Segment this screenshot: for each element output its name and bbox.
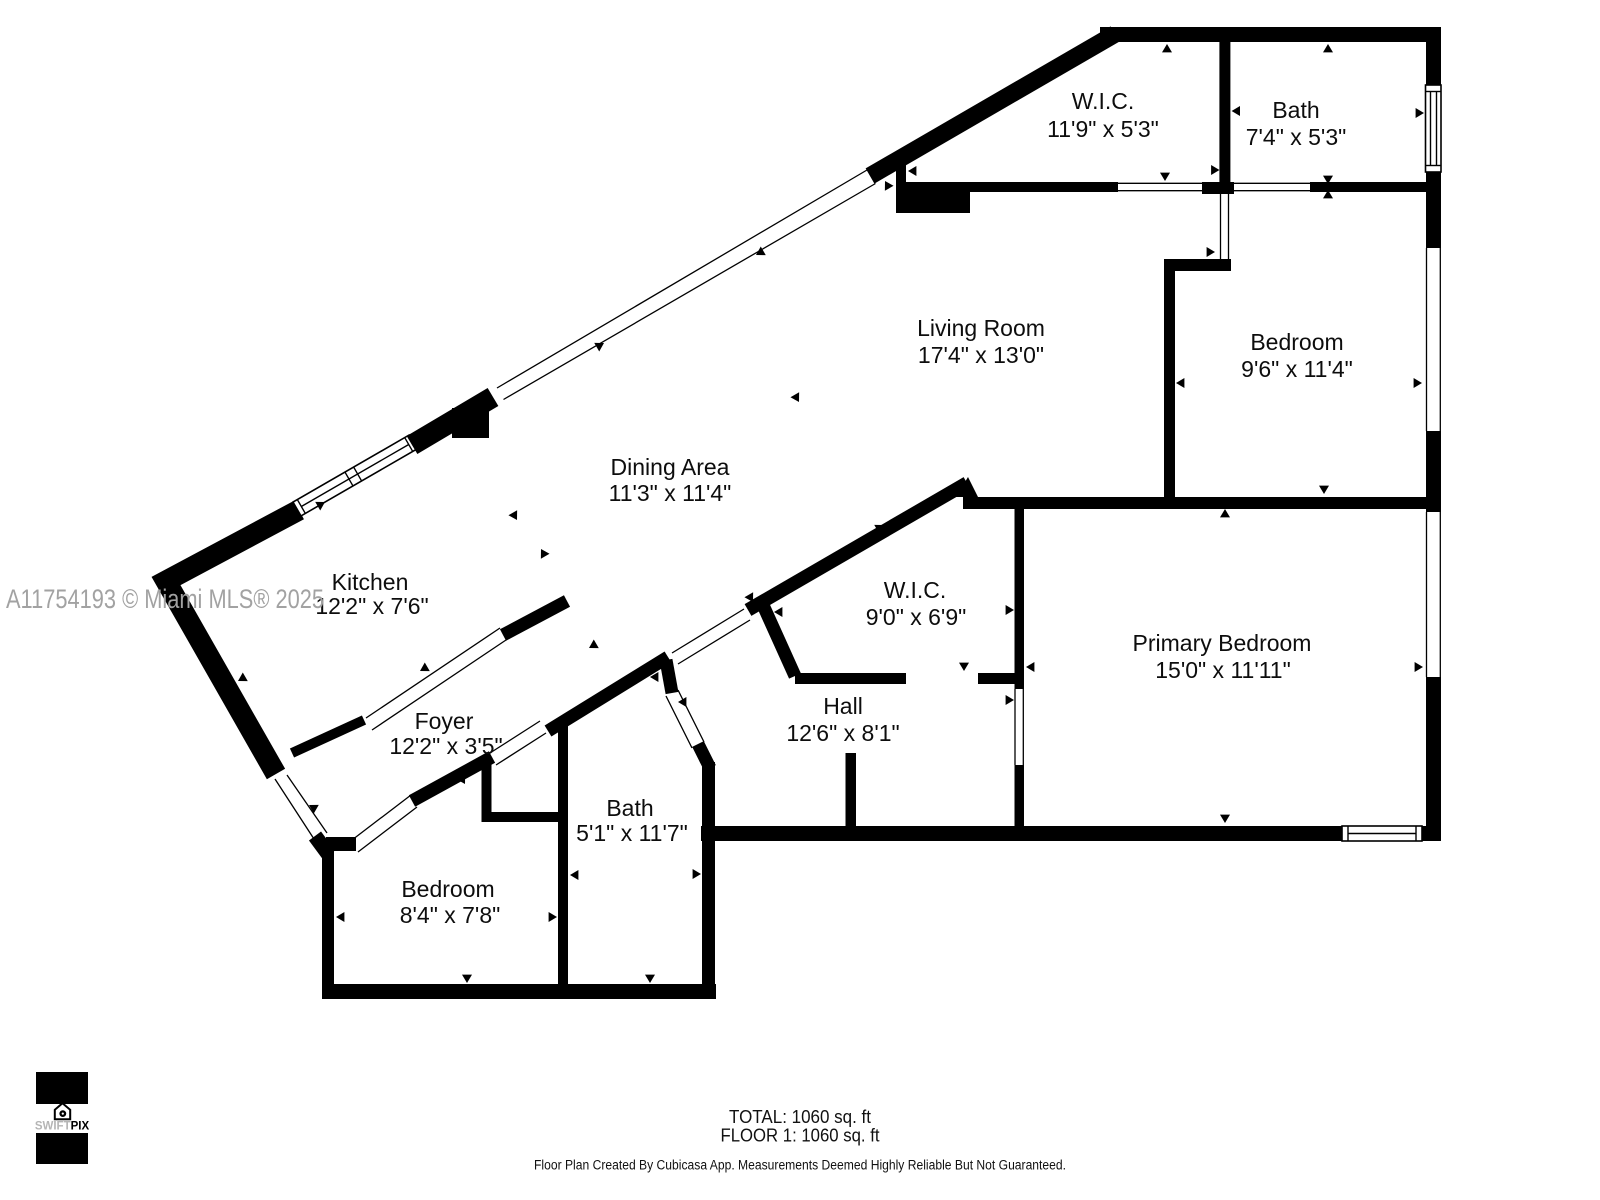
- svg-text:Primary Bedroom: Primary Bedroom: [1133, 630, 1312, 656]
- svg-text:Bedroom: Bedroom: [401, 876, 494, 902]
- svg-text:W.I.C.: W.I.C.: [884, 577, 947, 603]
- svg-text:Dining Area: Dining Area: [611, 454, 730, 480]
- svg-text:17'4" x 13'0": 17'4" x 13'0": [918, 342, 1044, 368]
- svg-text:Living Room: Living Room: [917, 315, 1045, 341]
- svg-text:W.I.C.: W.I.C.: [1072, 88, 1135, 114]
- svg-text:Bath: Bath: [606, 795, 653, 821]
- svg-text:Floor Plan Created By Cubicasa: Floor Plan Created By Cubicasa App. Meas…: [534, 1158, 1066, 1173]
- svg-text:8'4" x 7'8": 8'4" x 7'8": [400, 902, 501, 928]
- svg-text:15'0" x 11'11": 15'0" x 11'11": [1155, 657, 1291, 683]
- svg-text:11'9" x 5'3": 11'9" x 5'3": [1047, 116, 1159, 142]
- svg-text:FLOOR 1: 1060 sq. ft: FLOOR 1: 1060 sq. ft: [721, 1125, 880, 1146]
- svg-text:12'2" x 3'5": 12'2" x 3'5": [389, 733, 502, 759]
- svg-text:9'6" x 11'4": 9'6" x 11'4": [1241, 356, 1353, 382]
- svg-text:A11754193 © Miami MLS® 2025: A11754193 © Miami MLS® 2025: [6, 584, 324, 614]
- svg-text:12'6" x 8'1": 12'6" x 8'1": [786, 720, 899, 746]
- svg-text:7'4" x 5'3": 7'4" x 5'3": [1246, 124, 1347, 150]
- svg-text:Bath: Bath: [1272, 97, 1319, 123]
- svg-text:9'0" x 6'9": 9'0" x 6'9": [866, 604, 967, 630]
- svg-text:12'2" x 7'6": 12'2" x 7'6": [315, 593, 428, 619]
- svg-text:5'1" x 11'7": 5'1" x 11'7": [576, 820, 688, 846]
- svg-text:SWIFTPIX: SWIFTPIX: [35, 1121, 90, 1133]
- svg-text:Bedroom: Bedroom: [1250, 329, 1343, 355]
- svg-text:11'3" x 11'4": 11'3" x 11'4": [609, 480, 732, 506]
- svg-text:Kitchen: Kitchen: [332, 569, 409, 595]
- svg-text:Foyer: Foyer: [415, 708, 474, 734]
- svg-text:Hall: Hall: [823, 693, 863, 719]
